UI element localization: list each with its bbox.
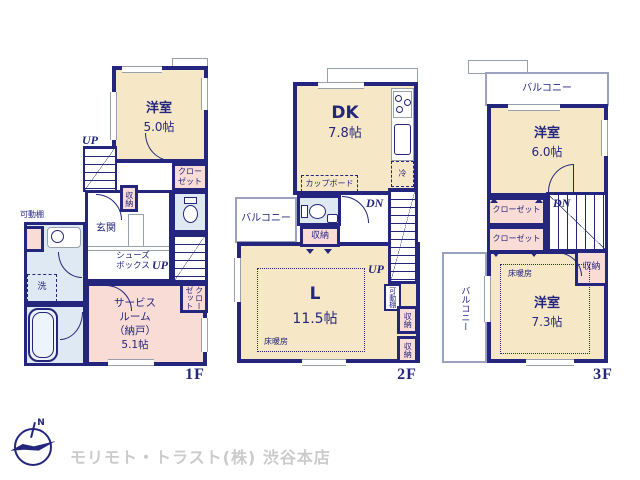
bathtub-inner-icon [32,312,54,358]
balcony-2f-label: バルコニー [237,212,295,226]
stove-burner-icon [404,99,411,106]
window [108,359,154,366]
window [110,92,117,140]
shoe-box-cabinet [128,214,144,247]
storage-2f-side-label: 収納 [399,338,416,361]
movable-shelf-box [24,226,44,252]
opening-mark [490,198,498,203]
movable-shelf-2f-label: 可動棚 [386,285,399,310]
floor-tag-3f: 3F [588,367,618,383]
room-western-5-0-size: 5.0帖 [134,120,184,135]
closet-3f-upper-label: クローゼット [489,203,544,217]
closet-3f-lower-label: クローゼット [489,232,544,246]
shoe-box-label: シューズ ボックス [108,250,158,272]
stairs-1f [172,233,208,283]
stairs-dn-label: DN [366,196,383,211]
window [302,359,346,366]
window [526,359,574,366]
stairs-2f [388,188,418,284]
window [122,66,162,73]
window [318,82,364,89]
stairs-dn-label: DN [553,196,570,211]
toilet-tank-icon [184,197,197,204]
fridge-label: 冷 [391,168,414,180]
toilet-bowl-icon [309,204,326,219]
room-western-6-0-label: 洋室 [522,126,572,142]
opening-mark [535,198,543,203]
compass-n-label: N [35,418,47,428]
window [601,120,608,156]
window [201,318,208,352]
kitchen-sink-icon [394,124,411,155]
opening-mark [530,252,538,257]
floor-tag-2f: 2F [392,367,422,383]
opening-mark [492,252,500,257]
room-western-5-0-label: 洋室 [134,100,184,118]
movable-shelf-label: 可動棚 [14,209,50,220]
toilet-bowl-icon [183,205,198,223]
room-living-label: L [295,284,335,304]
laundry-label: 洗 [27,280,57,294]
cupboard-label: カップボード [303,178,356,190]
entry-steps-1f [83,146,117,192]
window [508,104,560,111]
room-dk-size: 7.8帖 [320,126,370,142]
storage-2f-side-label: 収納 [399,308,416,332]
stairs-up-label: UP [152,258,168,273]
stairs-up-label: UP [368,262,384,277]
stove-burner-icon [396,106,403,113]
balcony-3f-left-label: バルコニー [456,278,472,338]
room-western-6-0-size: 6.0帖 [522,145,572,160]
storage-3f-label: 収納 [577,261,606,274]
room-western-7-3-size: 7.3帖 [522,315,572,330]
opening-mark [324,249,332,254]
opening-mark [306,249,314,254]
washbasin-bowl-icon [51,230,64,243]
floor-heating-label: 床暖房 [258,336,294,347]
storage-1f-label: 収納 [122,187,136,210]
floor-tag-1f: 1F [180,367,210,383]
storage-2f-label: 収納 [302,230,338,243]
room-living-size: 11.5帖 [283,310,347,328]
service-room-label: サービス ルーム （納戸） 5.1帖 [100,288,170,360]
floorplan-canvas: 洋室 5.0帖 クロー ゼット 玄関 シューズ ボックス UP UP 可動棚 洗 [0,0,640,480]
steps-up-label: UP [82,133,98,148]
balcony-3f-top-label: バルコニー [515,82,579,96]
window [201,78,208,110]
closet-1f-side-label: クローゼット [182,284,206,312]
closet-1f-label: クロー ゼット [174,166,206,188]
hand-sink-icon [327,214,338,223]
stove-burner-icon [395,95,402,102]
toilet-tank-icon [301,205,308,218]
floor-heating-label: 床暖房 [502,268,538,279]
room-western-7-3-label: 洋室 [522,296,572,312]
room-dk-label: DK [320,103,370,123]
toilet-door-arc [342,196,369,223]
entrance-label: 玄関 [88,222,124,236]
window [484,276,491,322]
window [234,258,241,302]
company-name: モリモト・トラスト(株) 渋谷本店 [70,444,331,468]
